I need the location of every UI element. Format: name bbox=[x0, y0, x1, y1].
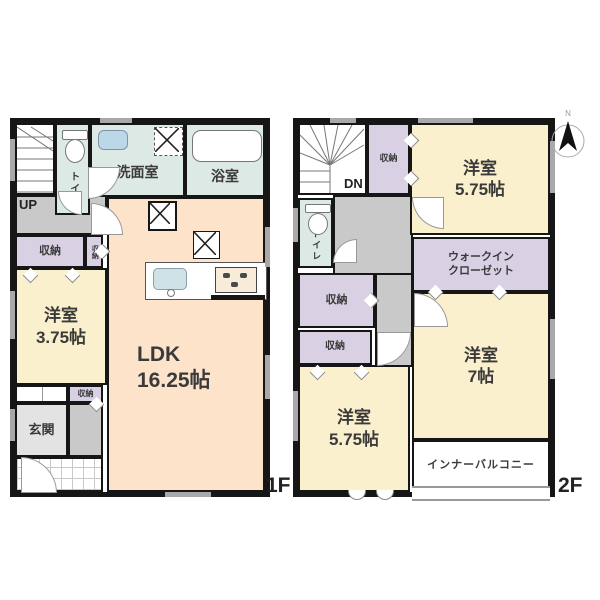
room-storage-top-2f: 収納 bbox=[367, 123, 410, 195]
pillar-icon bbox=[193, 231, 220, 259]
floor-label-2f: 2F bbox=[558, 474, 583, 498]
room-entrance: 玄関 bbox=[15, 403, 68, 457]
window-marker bbox=[10, 409, 15, 441]
ldk-name: LDK bbox=[137, 342, 211, 368]
storage-label: 収納 bbox=[78, 389, 94, 399]
window-marker bbox=[293, 391, 298, 441]
window-marker bbox=[10, 291, 15, 339]
storage-label: 収納 bbox=[39, 245, 61, 259]
bathtub-icon bbox=[192, 130, 262, 162]
room-ldk: LDK 16.25帖 bbox=[107, 197, 265, 492]
faucet-icon bbox=[167, 289, 175, 297]
window-marker bbox=[293, 208, 298, 242]
stairs-up-label: UP bbox=[19, 197, 37, 212]
bedroom-name: 洋室 bbox=[337, 407, 371, 428]
door-swing-marker bbox=[376, 490, 394, 500]
window-marker bbox=[165, 492, 211, 497]
north-letter: N bbox=[565, 109, 571, 118]
bathroom-label: 浴室 bbox=[211, 168, 239, 186]
balcony-label: インナーバルコニー bbox=[427, 459, 535, 473]
stairs-up bbox=[15, 123, 55, 195]
room-storage-low-2f: 収納 bbox=[298, 330, 372, 365]
stove-icon bbox=[215, 267, 257, 293]
room-walk-in-closet: ウォークイン クローゼット bbox=[412, 237, 550, 292]
window-marker bbox=[330, 118, 356, 123]
floor-plan-page: { "compass": { "north": "N" }, "floor1":… bbox=[0, 0, 600, 600]
sink-icon bbox=[98, 130, 128, 150]
toilet-bowl-icon bbox=[308, 213, 328, 235]
window-marker bbox=[100, 118, 132, 123]
floor-plan-2f: DN 収納 洋室 5.75帖 トイレ ウォークイン クローゼット 収納 収納 洋… bbox=[293, 118, 555, 497]
pillar-icon bbox=[148, 201, 177, 231]
kitchen-wall-stub bbox=[211, 295, 265, 300]
bedroom-size: 5.75帖 bbox=[329, 429, 379, 450]
room-bedroom-1f: 洋室 3.75帖 bbox=[15, 268, 107, 385]
wic-label-line1: ウォークイン bbox=[448, 251, 514, 265]
window-marker bbox=[265, 355, 270, 399]
bedroom-size: 7帖 bbox=[468, 366, 494, 387]
toilet-bowl-icon bbox=[65, 139, 85, 163]
bedroom-name: 洋室 bbox=[464, 345, 498, 366]
storage-label: 収納 bbox=[325, 341, 345, 354]
hallway-entrance bbox=[68, 403, 103, 457]
stairs-icon bbox=[17, 125, 53, 193]
window-marker bbox=[418, 118, 473, 123]
room-toilet-2f: トイレ bbox=[298, 198, 333, 268]
shoe-cabinet bbox=[15, 385, 68, 403]
room-inner-balcony: インナーバルコニー bbox=[412, 440, 550, 492]
storage-label: 収納 bbox=[326, 294, 348, 308]
kitchen-sink-icon bbox=[153, 268, 187, 290]
floor-label-1f: 1F bbox=[266, 474, 291, 498]
toilet-icon bbox=[305, 204, 331, 213]
floor-plan-1f: トイレ 洗面室 浴室 収納 収納 洋室 3.75帖 収納 玄関 LDK 16.2… bbox=[10, 118, 270, 497]
door-swing-marker bbox=[348, 490, 366, 500]
window-marker bbox=[10, 139, 15, 181]
bedroom-name: 洋室 bbox=[463, 158, 497, 179]
storage-label: 収納 bbox=[379, 153, 397, 164]
balcony-railing bbox=[412, 486, 550, 501]
ldk-size: 16.25帖 bbox=[137, 368, 211, 394]
room-bathroom: 浴室 bbox=[185, 123, 265, 197]
bedroom-size: 3.75帖 bbox=[36, 327, 86, 348]
window-marker bbox=[265, 227, 270, 267]
hallway-2f bbox=[333, 195, 413, 275]
pillar-icon bbox=[154, 127, 183, 156]
entrance-label: 玄関 bbox=[28, 422, 54, 438]
bedroom-name: 洋室 bbox=[44, 305, 78, 326]
stairs-down-label: DN bbox=[344, 176, 363, 191]
bedroom-size: 5.75帖 bbox=[455, 179, 505, 200]
window-marker bbox=[550, 319, 555, 379]
window-marker bbox=[550, 141, 555, 193]
washroom-label: 洗面室 bbox=[117, 164, 159, 182]
room-bedroom-bottom-2f: 洋室 5.75帖 bbox=[298, 365, 410, 492]
room-storage-main-1f: 収納 bbox=[15, 235, 85, 268]
wic-label-line2: クローゼット bbox=[448, 265, 514, 279]
